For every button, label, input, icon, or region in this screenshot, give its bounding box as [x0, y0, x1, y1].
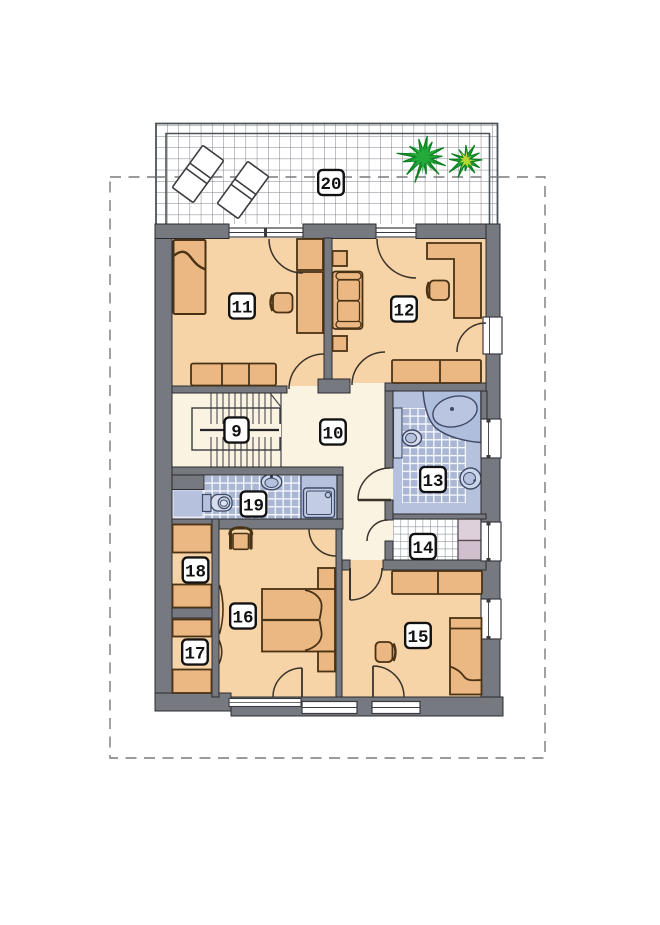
svg-text:14: 14	[412, 539, 433, 559]
svg-text:13: 13	[422, 472, 443, 492]
svg-text:17: 17	[184, 645, 205, 665]
svg-text:12: 12	[393, 302, 414, 322]
svg-text:16: 16	[232, 609, 253, 629]
svg-text:15: 15	[407, 628, 428, 648]
svg-text:10: 10	[322, 425, 343, 445]
svg-text:9: 9	[231, 423, 242, 443]
svg-text:20: 20	[320, 175, 341, 195]
svg-text:11: 11	[231, 299, 252, 319]
svg-text:19: 19	[243, 497, 264, 517]
svg-text:18: 18	[185, 563, 206, 583]
